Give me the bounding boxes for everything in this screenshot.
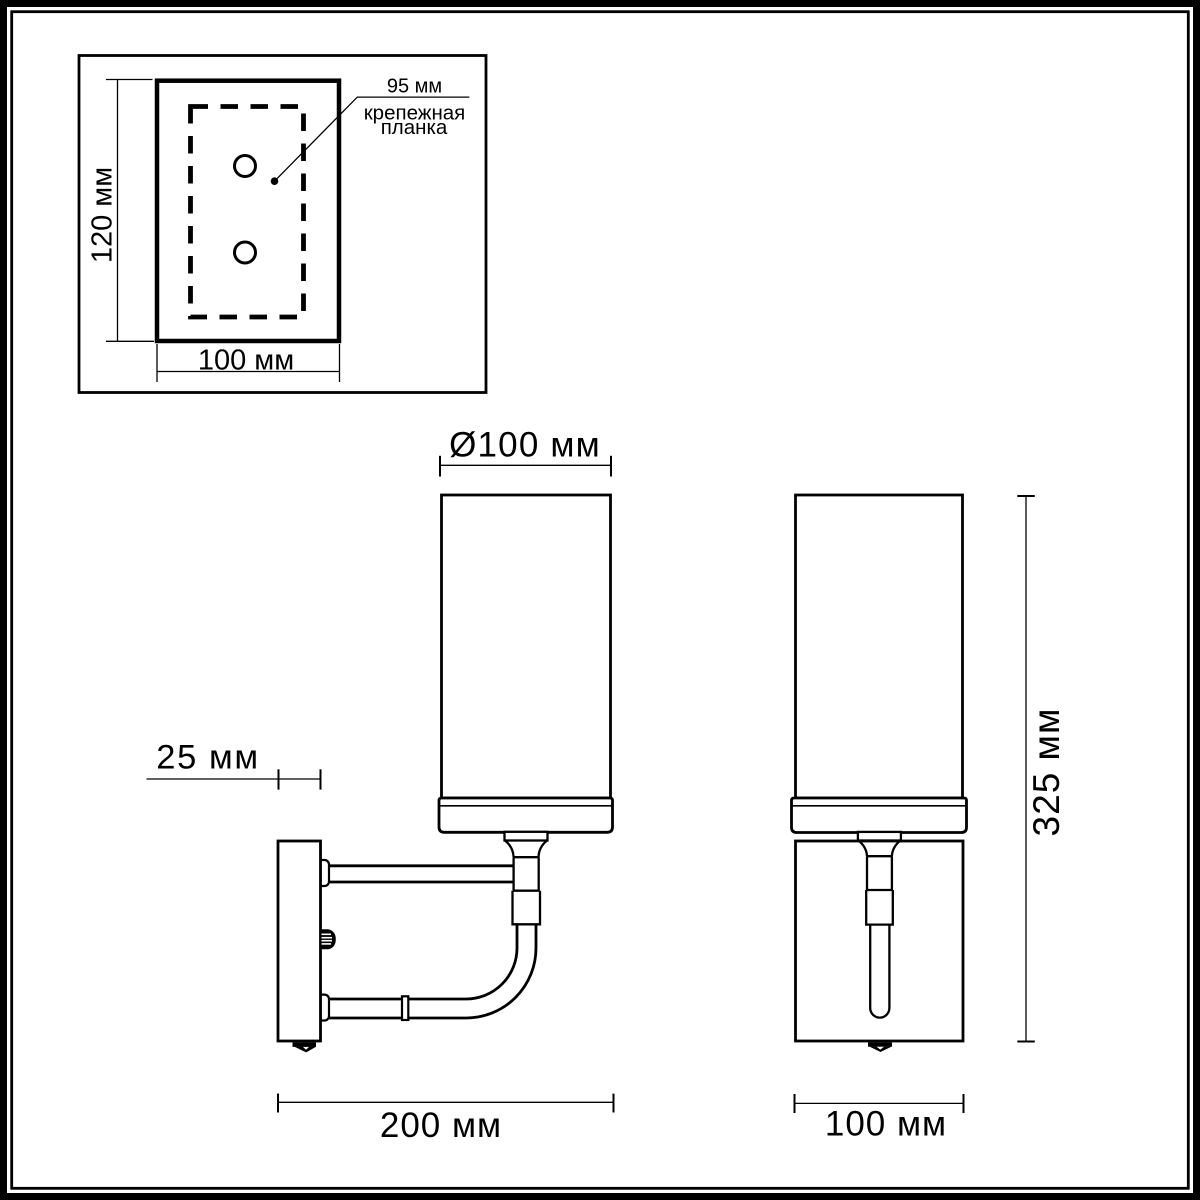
svg-text:100 мм: 100 мм: [825, 1104, 947, 1143]
svg-text:325 мм: 325 мм: [1026, 708, 1067, 837]
svg-text:25 мм: 25 мм: [156, 739, 259, 777]
svg-text:95 мм: 95 мм: [387, 76, 442, 98]
svg-text:100 мм: 100 мм: [198, 345, 294, 377]
svg-text:200 мм: 200 мм: [380, 1106, 502, 1145]
svg-text:Ø100 мм: Ø100 мм: [449, 425, 601, 464]
svg-text:планка: планка: [381, 116, 448, 139]
svg-text:120 мм: 120 мм: [87, 167, 119, 263]
